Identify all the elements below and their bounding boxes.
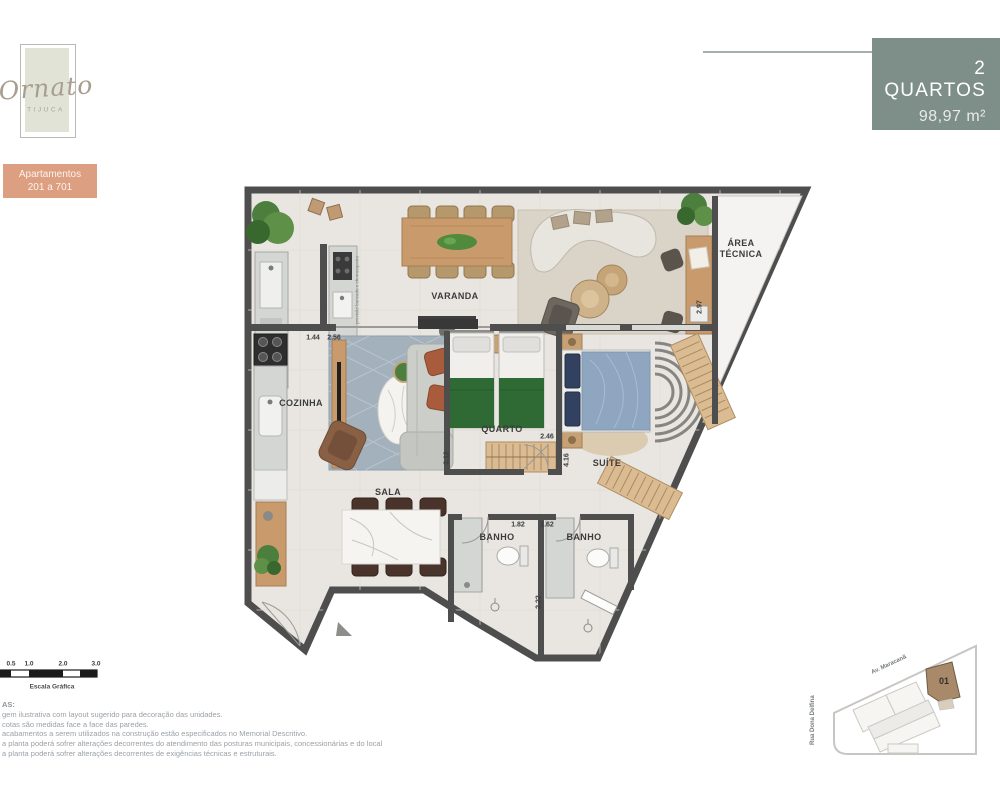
scale-tick-label: 2.0 [58, 661, 67, 668]
scale-tick-label: 3.0 [91, 661, 100, 668]
badge-line1: Apartamentos [19, 168, 81, 181]
unit-type-title: 2 QUARTOS [872, 58, 986, 102]
room-label-area-tecnica-2: TÉCNICA [720, 249, 763, 259]
notes-line: cotas são medidas face a face das parede… [2, 720, 762, 730]
living-furniture [518, 193, 714, 340]
room-label-banho-1: BANHO [480, 532, 515, 542]
dimension-label: 4.18 [427, 570, 441, 577]
apartments-badge: Apartamentos 201 a 701 [3, 164, 97, 198]
room-label-area-tecnica-1: ÁREA [727, 238, 754, 248]
scale-bar [0, 670, 97, 677]
notes-line: a planta poderá sofrer alterações decorr… [2, 749, 762, 759]
floorplan-page: Ornato TIJUCA Apartamentos 201 a 701 2 Q… [0, 0, 1000, 800]
entry-marker [336, 622, 352, 636]
scale-caption: Escala Gráfica [30, 684, 75, 691]
room-label-sala: SALA [375, 487, 401, 497]
header-rule [703, 51, 872, 53]
room-label-cozinha: COZINHA [279, 398, 323, 408]
street-label-left: Rua Dona Delfina [810, 695, 816, 745]
scale-tick-label: 1.0 [24, 661, 33, 668]
notes-line: acabamentos a serem utilizados na constr… [2, 729, 762, 739]
key-map [834, 646, 976, 754]
room-label-suite: SUÍTE [593, 458, 622, 468]
dimension-label: 2.97 [697, 300, 704, 314]
room-label-banho-2: BANHO [567, 532, 602, 542]
counter-annotation: previsão bancada e churrasqueira [355, 256, 360, 324]
dimension-label: 4.16 [564, 453, 571, 467]
scale-tick-label: 0.5 [6, 661, 15, 668]
notes-heading: AS: [2, 700, 762, 710]
dimension-label: 1.82 [511, 522, 525, 529]
disclaimer-notes: AS: gem ilustrativa com layout sugerido … [2, 700, 762, 759]
dimension-label: 1.44 [306, 335, 320, 342]
brand-logo-sub: TIJUCA [27, 107, 65, 114]
dimension-label: 2.46 [540, 434, 554, 441]
room-label-varanda: VARANDA [431, 291, 478, 301]
kitchen-furniture [254, 334, 287, 586]
unit-type-header: 2 QUARTOS 98,97 m² [872, 38, 1000, 130]
dimension-label: 2.56 [327, 335, 341, 342]
dimension-label: 3.12 [444, 451, 451, 465]
notes-line: gem ilustrativa com layout sugerido para… [2, 710, 762, 720]
room-label-quarto: QUARTO [481, 424, 522, 434]
dimension-label: 2.22 [536, 595, 543, 609]
badge-line2: 201 a 701 [28, 181, 73, 194]
plan-artwork [0, 0, 1000, 800]
unit-number: 01 [939, 676, 949, 686]
notes-line: a planta poderá sofrer alterações decorr… [2, 739, 762, 749]
unit-area: 98,97 m² [872, 108, 986, 126]
dimension-label: 1.62 [540, 522, 554, 529]
